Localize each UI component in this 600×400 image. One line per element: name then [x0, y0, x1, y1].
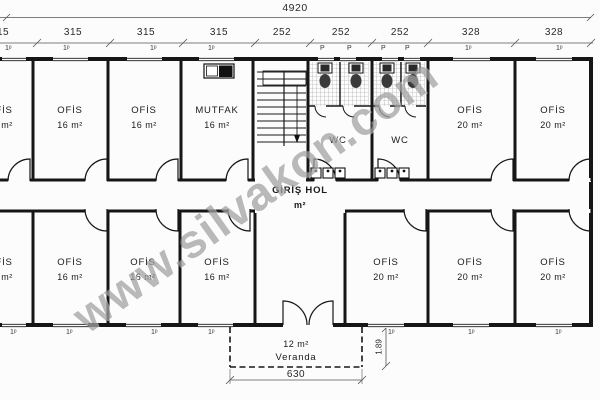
veranda-width-dimension: 630 [287, 369, 305, 380]
room-label: OFİS16 m² [0, 104, 13, 132]
veranda-label: 12 m²Veranda [276, 337, 317, 365]
window-mark: 1ᵖ [63, 45, 70, 52]
room-label: OFİS20 m² [457, 256, 483, 284]
window-mark: 1ᵖ [66, 329, 73, 336]
floorplan-page: 4920 315 315 315 315 252 252 252 328 328… [0, 0, 600, 400]
segment-dimension: 252 [332, 27, 350, 38]
window-mark: 1ᵖ [208, 45, 215, 52]
room-label: OFİS16 m² [57, 256, 83, 284]
room-label: OFİS16 m² [0, 256, 13, 284]
segment-dimension: 315 [64, 27, 82, 38]
kitchen-counter-icon [204, 64, 234, 78]
wc-window-mark: P [347, 45, 352, 52]
window-mark: 1ᵖ [150, 45, 157, 52]
wc-window-mark: P [320, 45, 325, 52]
segment-dimension: 315 [137, 27, 155, 38]
window-mark: 1ᵖ [208, 329, 215, 336]
segment-dimension: 252 [391, 27, 409, 38]
window-mark: 1ᵖ [388, 329, 395, 336]
room-label: MUTFAK16 m² [195, 104, 238, 132]
room-label: OFİS16 m² [57, 104, 83, 132]
window-mark: 1ᵖ [151, 329, 158, 336]
window-mark: 1ᵖ [555, 329, 562, 336]
wc-window-mark: P [381, 45, 386, 52]
room-label: OFİS20 m² [373, 256, 399, 284]
room-label: OFİS20 m² [540, 104, 566, 132]
veranda-depth-dimension: 1.89 [375, 339, 384, 355]
window-mark: 1ᵖ [556, 45, 563, 52]
window-mark: 1ᵖ [10, 329, 17, 336]
segment-dimension: 328 [545, 27, 563, 38]
segment-dimension: 315 [0, 27, 9, 38]
window-mark: 1ᵖ [465, 45, 472, 52]
window-mark: 1ᵖ [5, 45, 12, 52]
room-label: OFİS20 m² [457, 104, 483, 132]
room-label: OFİS16 m² [131, 104, 157, 132]
wc-label: WC [391, 134, 408, 148]
overall-width-dimension: 4920 [282, 2, 307, 14]
segment-dimension: 315 [210, 27, 228, 38]
segment-dimension: 328 [462, 27, 480, 38]
room-label: OFİS20 m² [540, 256, 566, 284]
window-mark: 1ᵖ [468, 329, 475, 336]
segment-dimension: 252 [273, 27, 291, 38]
